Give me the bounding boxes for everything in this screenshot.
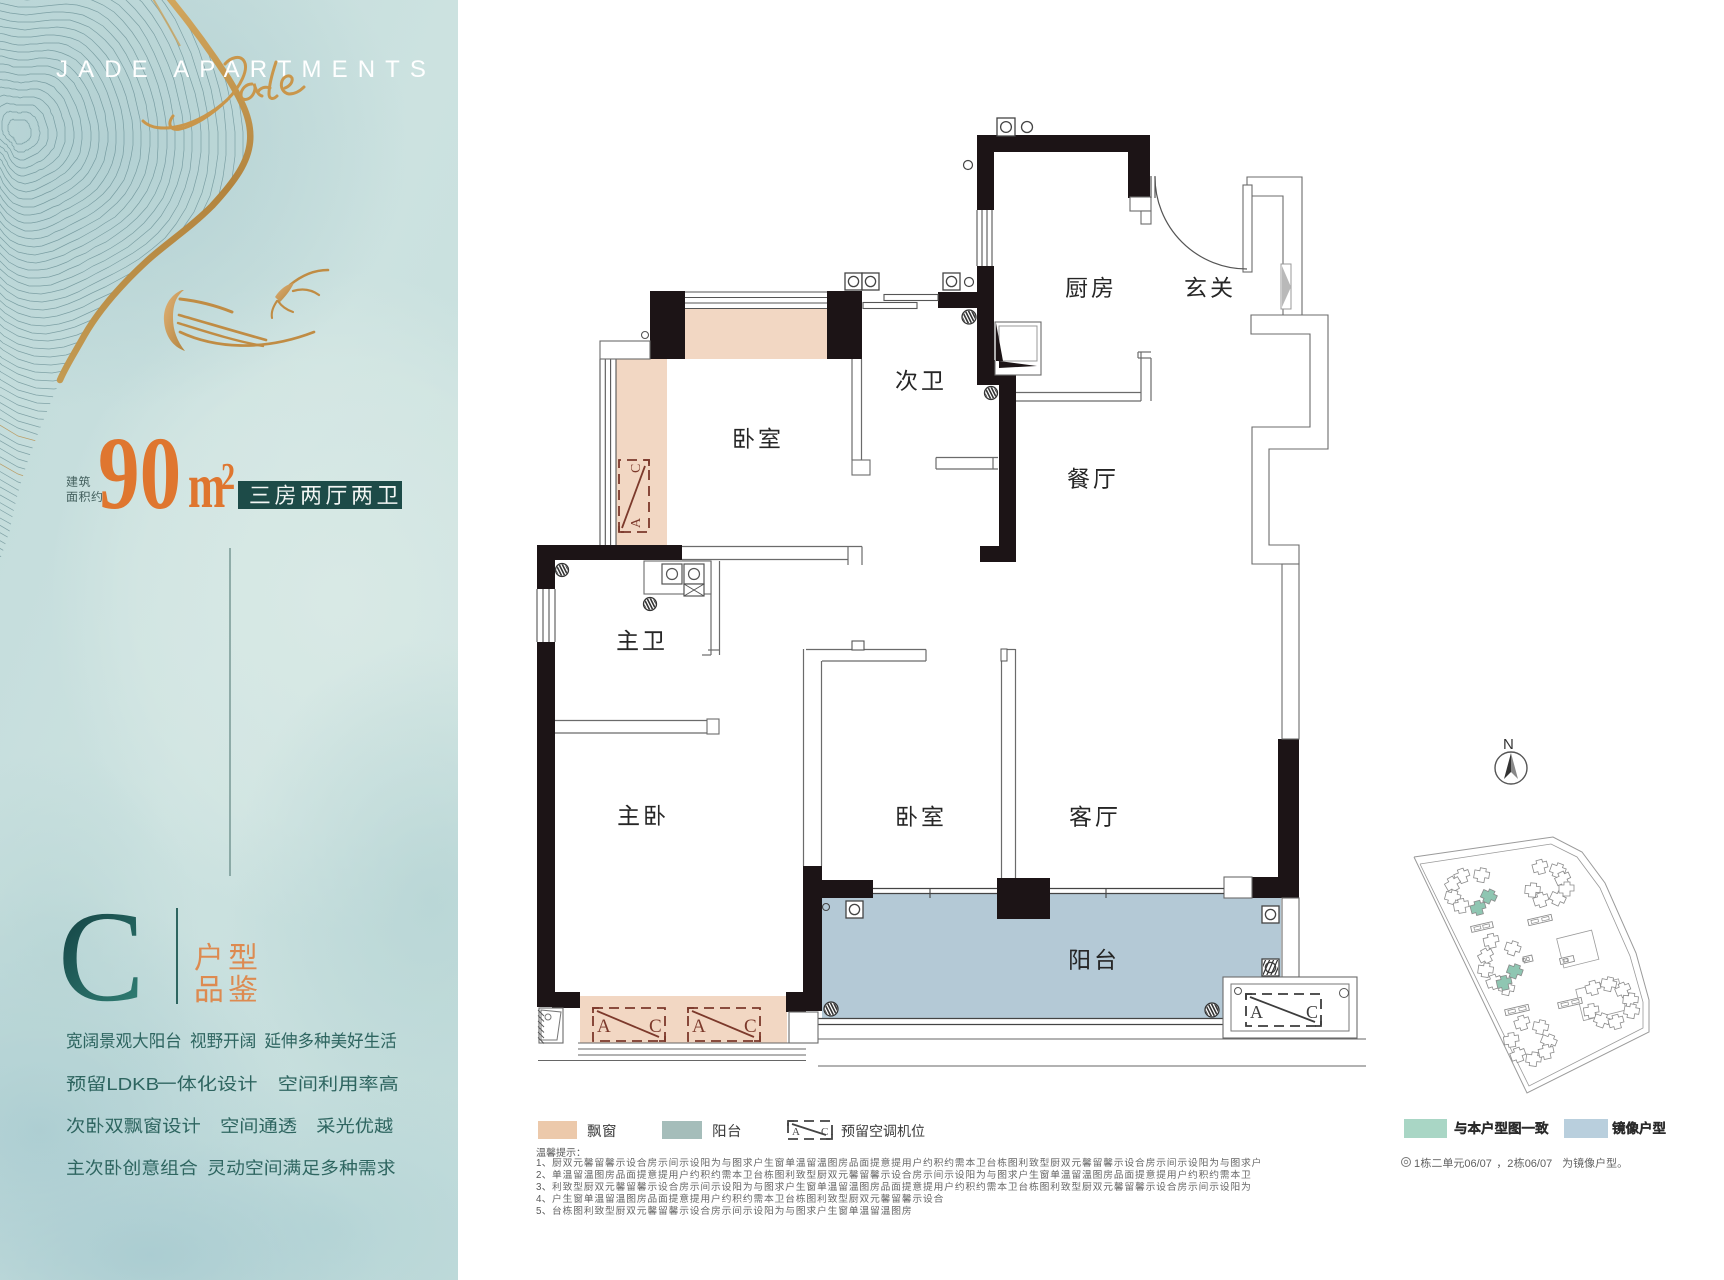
svg-text:A: A xyxy=(792,1126,800,1138)
svg-text:1: 1 xyxy=(1414,1158,1420,1170)
svg-text:C: C xyxy=(58,885,145,1029)
svg-text:06/07: 06/07 xyxy=(1464,1158,1492,1170)
svg-text:C: C xyxy=(821,1126,828,1138)
svg-text:06/07: 06/07 xyxy=(1525,1158,1553,1170)
svg-text:LDKB: LDKB xyxy=(106,1075,159,1094)
svg-text:5: 5 xyxy=(536,1206,542,1217)
svg-text:C: C xyxy=(629,464,644,473)
svg-text:m: m xyxy=(188,450,225,521)
svg-text:1: 1 xyxy=(536,1158,541,1169)
svg-text:A: A xyxy=(692,1016,706,1037)
svg-text:2: 2 xyxy=(536,1170,541,1181)
svg-text:A: A xyxy=(1250,1002,1263,1022)
svg-text:N: N xyxy=(1503,736,1514,753)
svg-text:A: A xyxy=(629,517,644,528)
svg-text:3: 3 xyxy=(536,1182,542,1193)
svg-text:C: C xyxy=(744,1016,757,1037)
svg-text:A: A xyxy=(597,1016,611,1037)
svg-text:4: 4 xyxy=(536,1194,542,1205)
svg-text:C: C xyxy=(649,1016,662,1037)
svg-text:C: C xyxy=(1306,1002,1318,1022)
svg-text:90: 90 xyxy=(98,416,181,531)
svg-text:2: 2 xyxy=(1507,1158,1513,1170)
svg-text:2: 2 xyxy=(221,456,235,498)
